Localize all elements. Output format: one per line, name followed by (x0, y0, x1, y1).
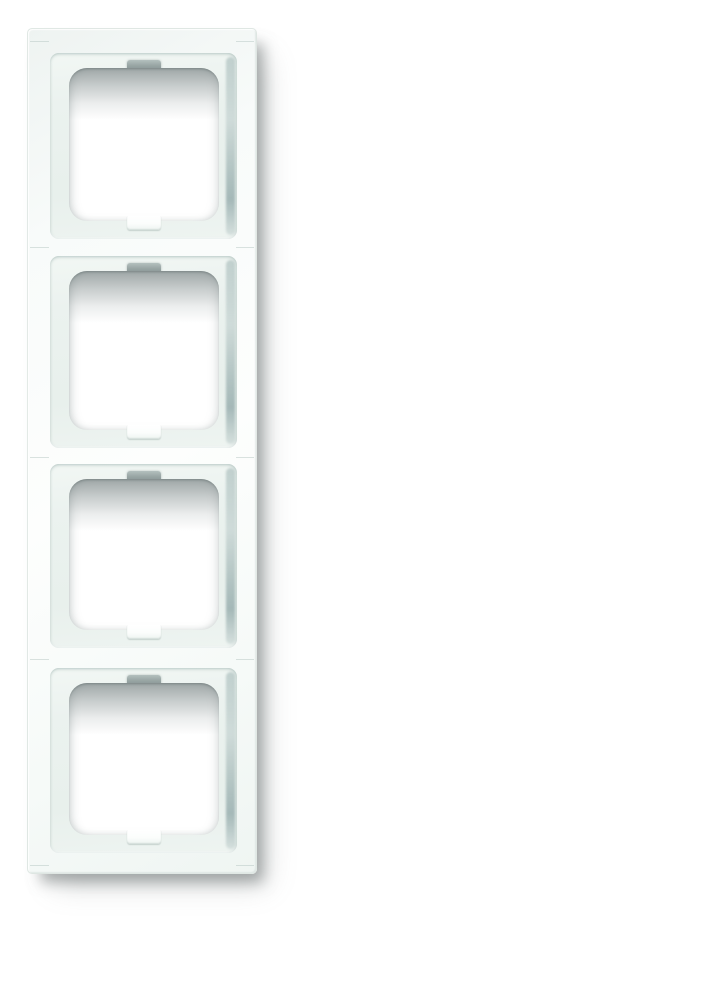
product-photo (0, 0, 709, 982)
gang-cell-column (28, 29, 256, 873)
recess-right-shading (226, 468, 235, 644)
cover-frame-4gang (27, 28, 257, 874)
module-window-opening (69, 683, 219, 836)
recess-right-shading (226, 57, 235, 235)
recess-right-shading (226, 672, 235, 850)
bottom-mounting-notch (127, 425, 161, 439)
bottom-mounting-notch (127, 830, 161, 844)
module-window-opening (69, 479, 219, 630)
frame-gang-recess-gang-4 (50, 668, 237, 854)
opening-inner-shadow (69, 683, 219, 735)
recess-right-shading (226, 260, 235, 444)
frame-gang-recess-gang-2 (50, 256, 237, 448)
bottom-mounting-notch (127, 625, 161, 639)
frame-gang-recess-gang-1 (50, 53, 237, 239)
opening-inner-shadow (69, 479, 219, 531)
opening-inner-shadow (69, 68, 219, 120)
bottom-mounting-notch (127, 216, 161, 230)
frame-gang-recess-gang-3 (50, 464, 237, 648)
opening-inner-shadow (69, 271, 219, 323)
module-window-opening (69, 271, 219, 430)
module-window-opening (69, 68, 219, 221)
